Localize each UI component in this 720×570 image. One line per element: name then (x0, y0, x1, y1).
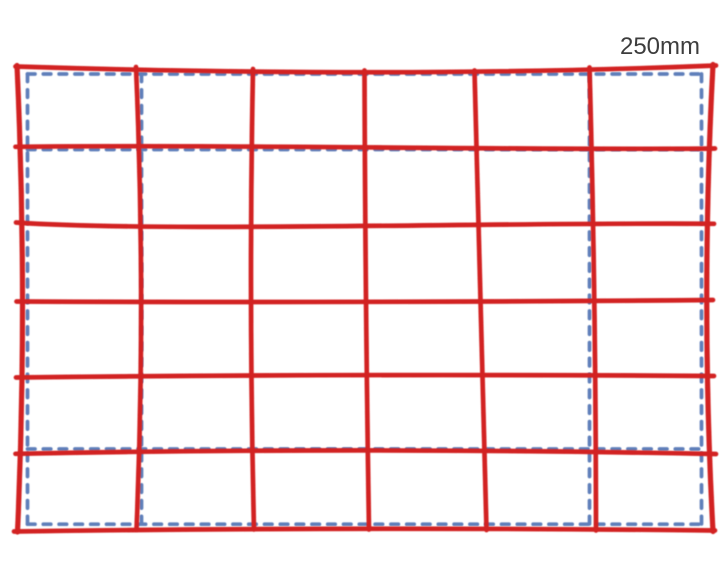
svg-text:250mm: 250mm (620, 33, 700, 60)
